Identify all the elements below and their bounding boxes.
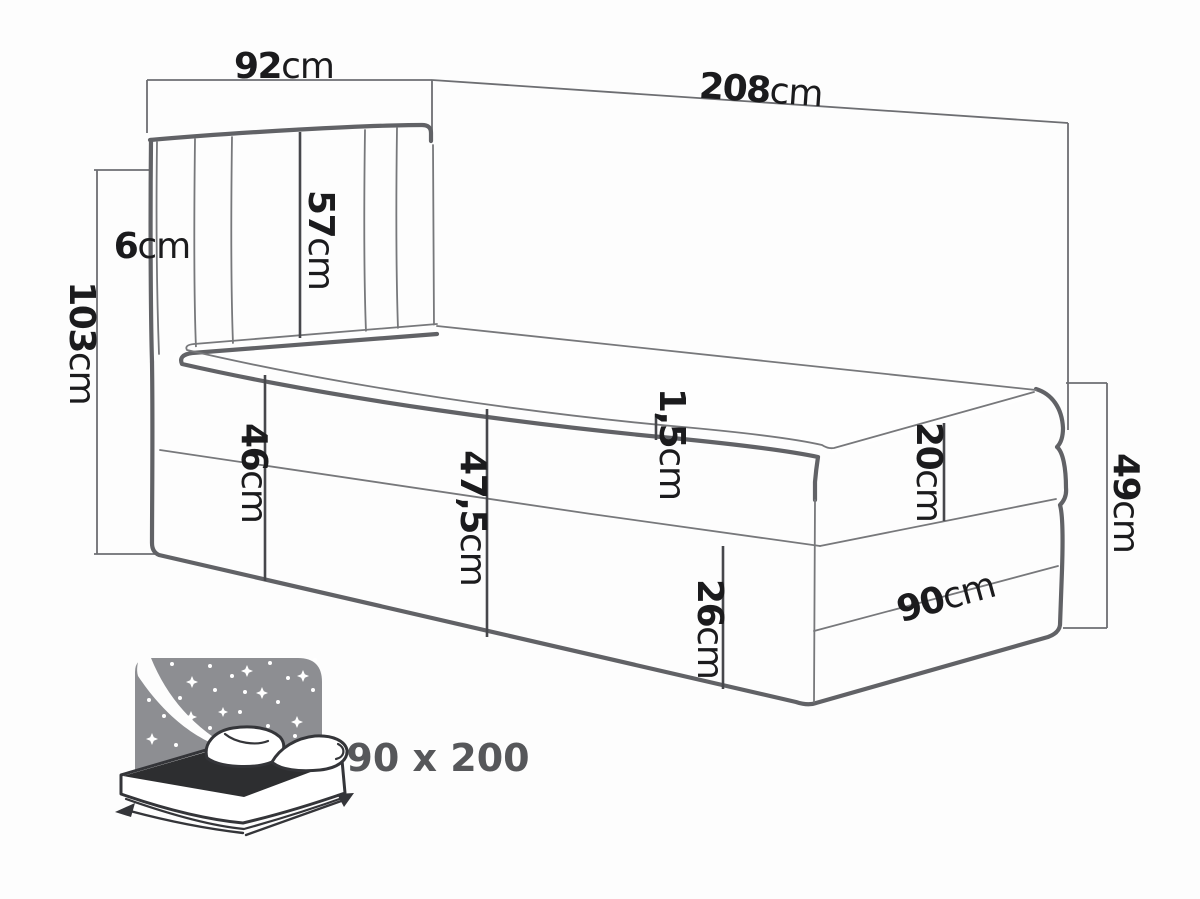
headboard-top-edge (150, 125, 431, 141)
label-total-height: 103cm (61, 281, 102, 405)
label-base-height-head: 46cm (233, 423, 274, 523)
label-headboard-panel-height: 57cm (300, 190, 341, 290)
label-topper-edge: 1,5cm (651, 388, 692, 500)
label-side-height-mid: 47,5cm (452, 450, 493, 586)
headboard (150, 125, 434, 362)
icon-size-label: 90 x 200 (346, 736, 529, 780)
headboard-seam-4 (364, 130, 366, 332)
label-bed-width: 90cm (892, 565, 999, 631)
bed-dimension-diagram: 92cm 208cm 103cm 6cm 57cm 46cm 47,5cm 1,… (0, 0, 1200, 899)
label-foot-end-height: 49cm (1105, 453, 1146, 553)
headboard-seam-5 (396, 128, 398, 329)
bed-size-icon: 90 x 200 (115, 658, 530, 835)
diagram-svg: 92cm 208cm 103cm 6cm 57cm 46cm 47,5cm 1,… (0, 0, 1200, 899)
foot-corner-edge (814, 500, 815, 702)
label-headboard-width: 92cm (234, 46, 334, 87)
headboard-seam-3 (231, 137, 233, 344)
headboard-seam-2 (194, 139, 196, 348)
label-headboard-side-depth: 6cm (114, 226, 190, 267)
label-mattress-thickness: 20cm (908, 422, 949, 522)
icon-pillows (206, 727, 347, 771)
label-lower-box-height: 26cm (689, 579, 730, 679)
headboard-right-edge (433, 145, 434, 328)
label-bed-length: 208cm (698, 66, 824, 116)
